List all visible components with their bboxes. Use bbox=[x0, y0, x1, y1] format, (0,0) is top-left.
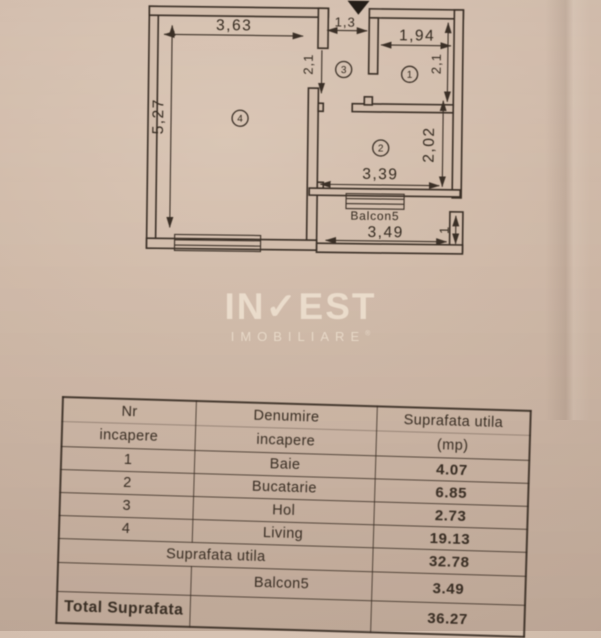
dim-room2-height: 2,02 bbox=[421, 126, 438, 162]
dim-hol-height: 2,1 bbox=[301, 53, 316, 74]
registered-mark: ® bbox=[365, 331, 370, 338]
room-number-hol: 3 bbox=[336, 61, 352, 77]
wordmark-part1: IN bbox=[225, 286, 266, 327]
dim-living-width: 3,63 bbox=[216, 17, 252, 34]
area-table: Nr Denumire Suprafata utila incapere inc… bbox=[55, 396, 532, 638]
dim-entry-width: 1,3 bbox=[335, 14, 356, 29]
invest-imobiliare-watermark: IN✓EST IMOBILIARE® bbox=[0, 288, 601, 344]
area-table-container: Nr Denumire Suprafata utila incapere inc… bbox=[55, 396, 514, 637]
wordmark-part2: EST bbox=[299, 286, 377, 327]
watermark-wordmark: IN✓EST bbox=[0, 288, 601, 325]
dim-balcony-width: 3,49 bbox=[368, 224, 404, 241]
check-icon: ✓ bbox=[266, 286, 299, 327]
total-label: Total Suprafata bbox=[56, 591, 190, 626]
dim-room2-width: 3,39 bbox=[362, 166, 398, 183]
scanned-document: { "floorplan": { "dims": { "living_width… bbox=[0, 0, 601, 631]
summary-balcon-value: 3.49 bbox=[372, 572, 526, 606]
floor-plan: 3,63 5,27 1,3 1,94 2,1 2,1 2,02 3,39 Bal… bbox=[0, 0, 601, 277]
svg-text:1: 1 bbox=[407, 70, 413, 81]
room-number-living: 4 bbox=[232, 110, 248, 126]
dim-room1-height: 2,1 bbox=[429, 53, 444, 74]
watermark-subtitle: IMOBILIARE® bbox=[0, 329, 601, 344]
dim-room1-width: 1,94 bbox=[399, 27, 435, 44]
dim-living-height: 5,27 bbox=[150, 98, 167, 134]
balcony-label: Balcon5 bbox=[350, 209, 399, 224]
dim-balcony-depth: 1 bbox=[437, 226, 452, 234]
summary-balcon-empty bbox=[57, 562, 191, 595]
entrance-arrow-icon bbox=[347, 1, 369, 15]
subtitle-text: IMOBILIARE bbox=[231, 329, 365, 344]
svg-text:4: 4 bbox=[237, 114, 243, 125]
room-number-bucatarie: 2 bbox=[373, 140, 389, 156]
total-empty bbox=[190, 595, 372, 632]
svg-text:2: 2 bbox=[378, 143, 384, 154]
total-value: 36.27 bbox=[371, 601, 525, 637]
room-number-baie: 1 bbox=[402, 66, 418, 82]
svg-text:3: 3 bbox=[341, 65, 347, 76]
